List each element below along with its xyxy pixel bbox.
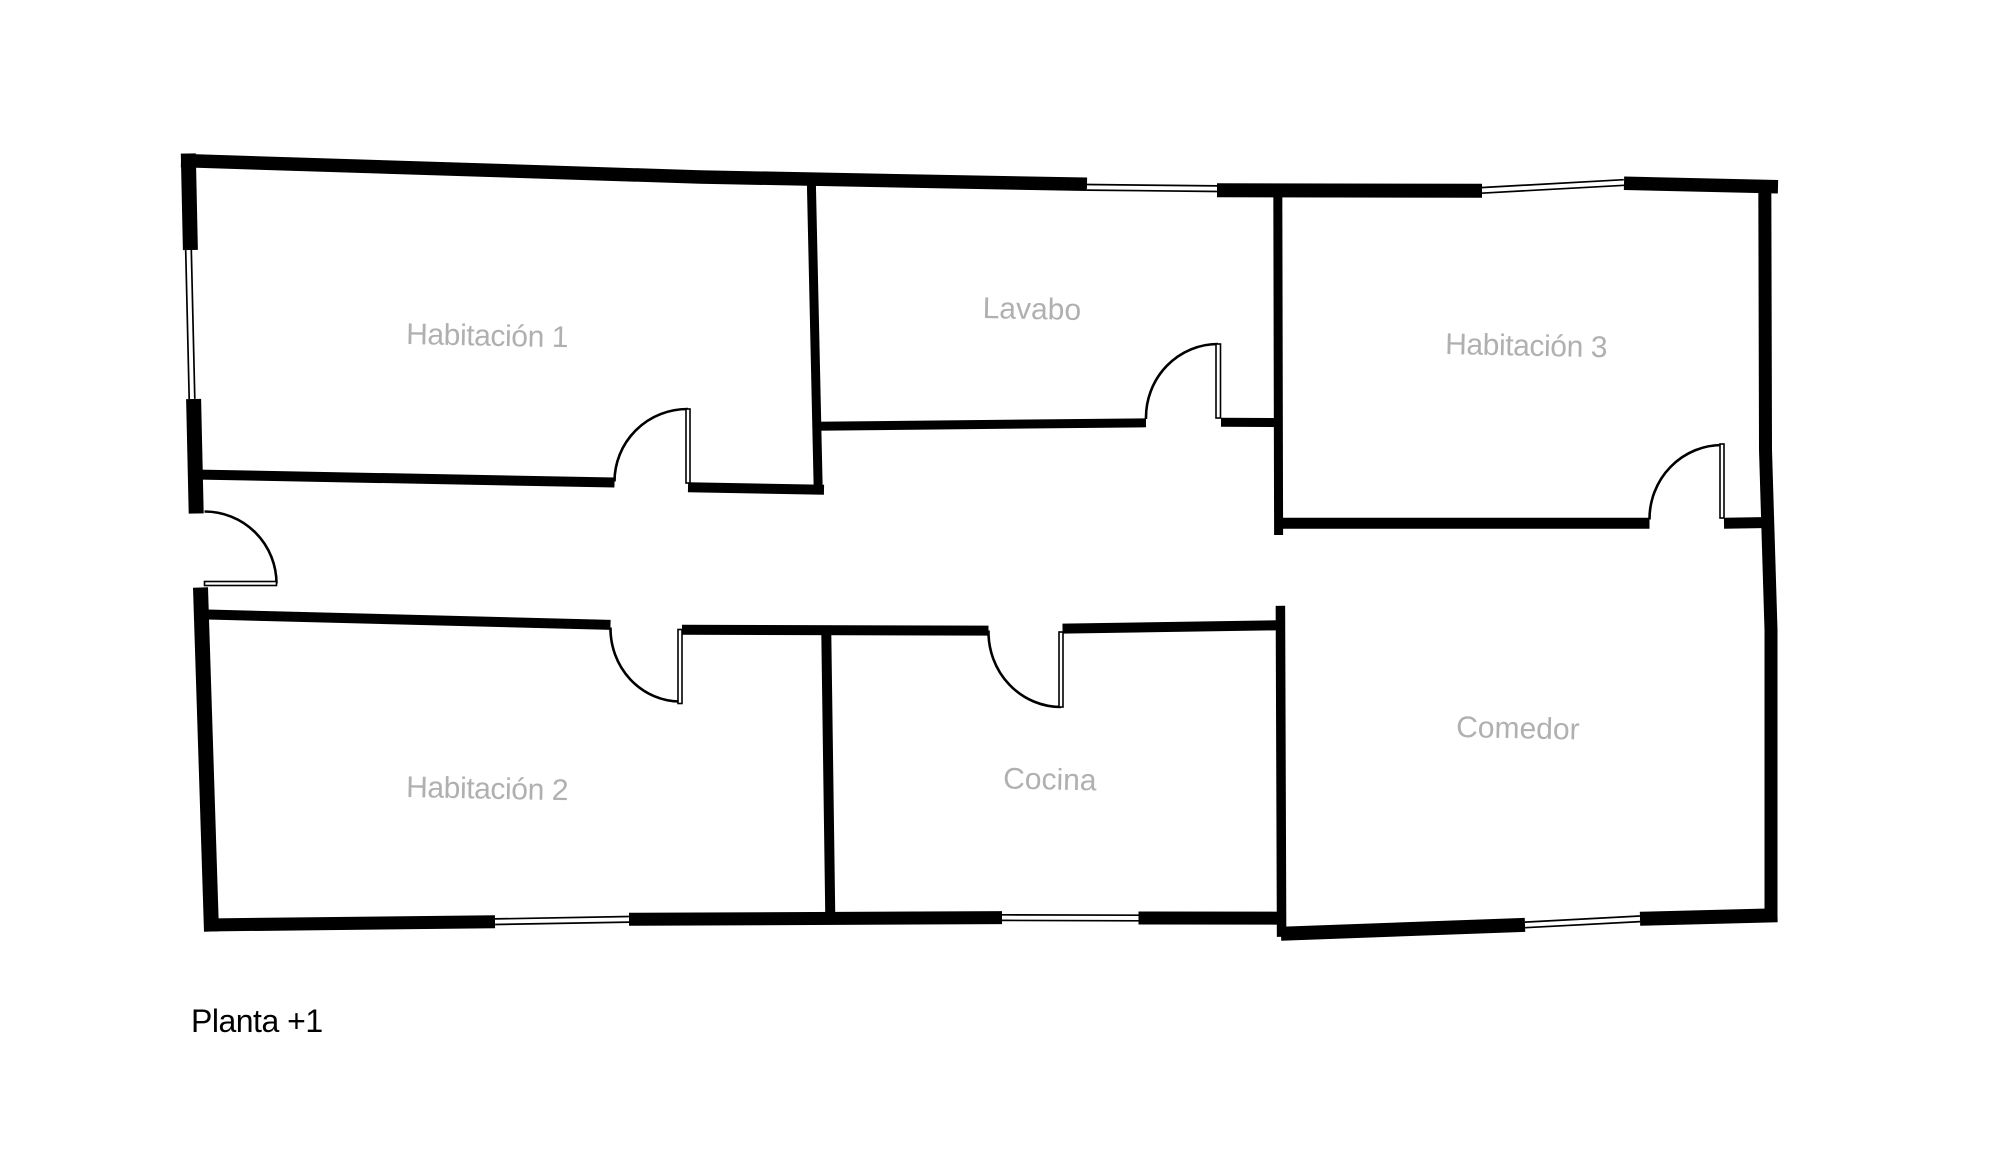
svg-text:Habitación 2: Habitación 2 [406,771,569,807]
svg-text:Cocina: Cocina [1003,763,1097,798]
svg-text:Lavabo: Lavabo [982,292,1081,327]
svg-text:Comedor: Comedor [1456,711,1580,746]
svg-text:Planta +1: Planta +1 [191,1003,323,1039]
svg-text:Habitación 1: Habitación 1 [406,318,569,354]
svg-text:Habitación 3: Habitación 3 [1445,328,1608,364]
